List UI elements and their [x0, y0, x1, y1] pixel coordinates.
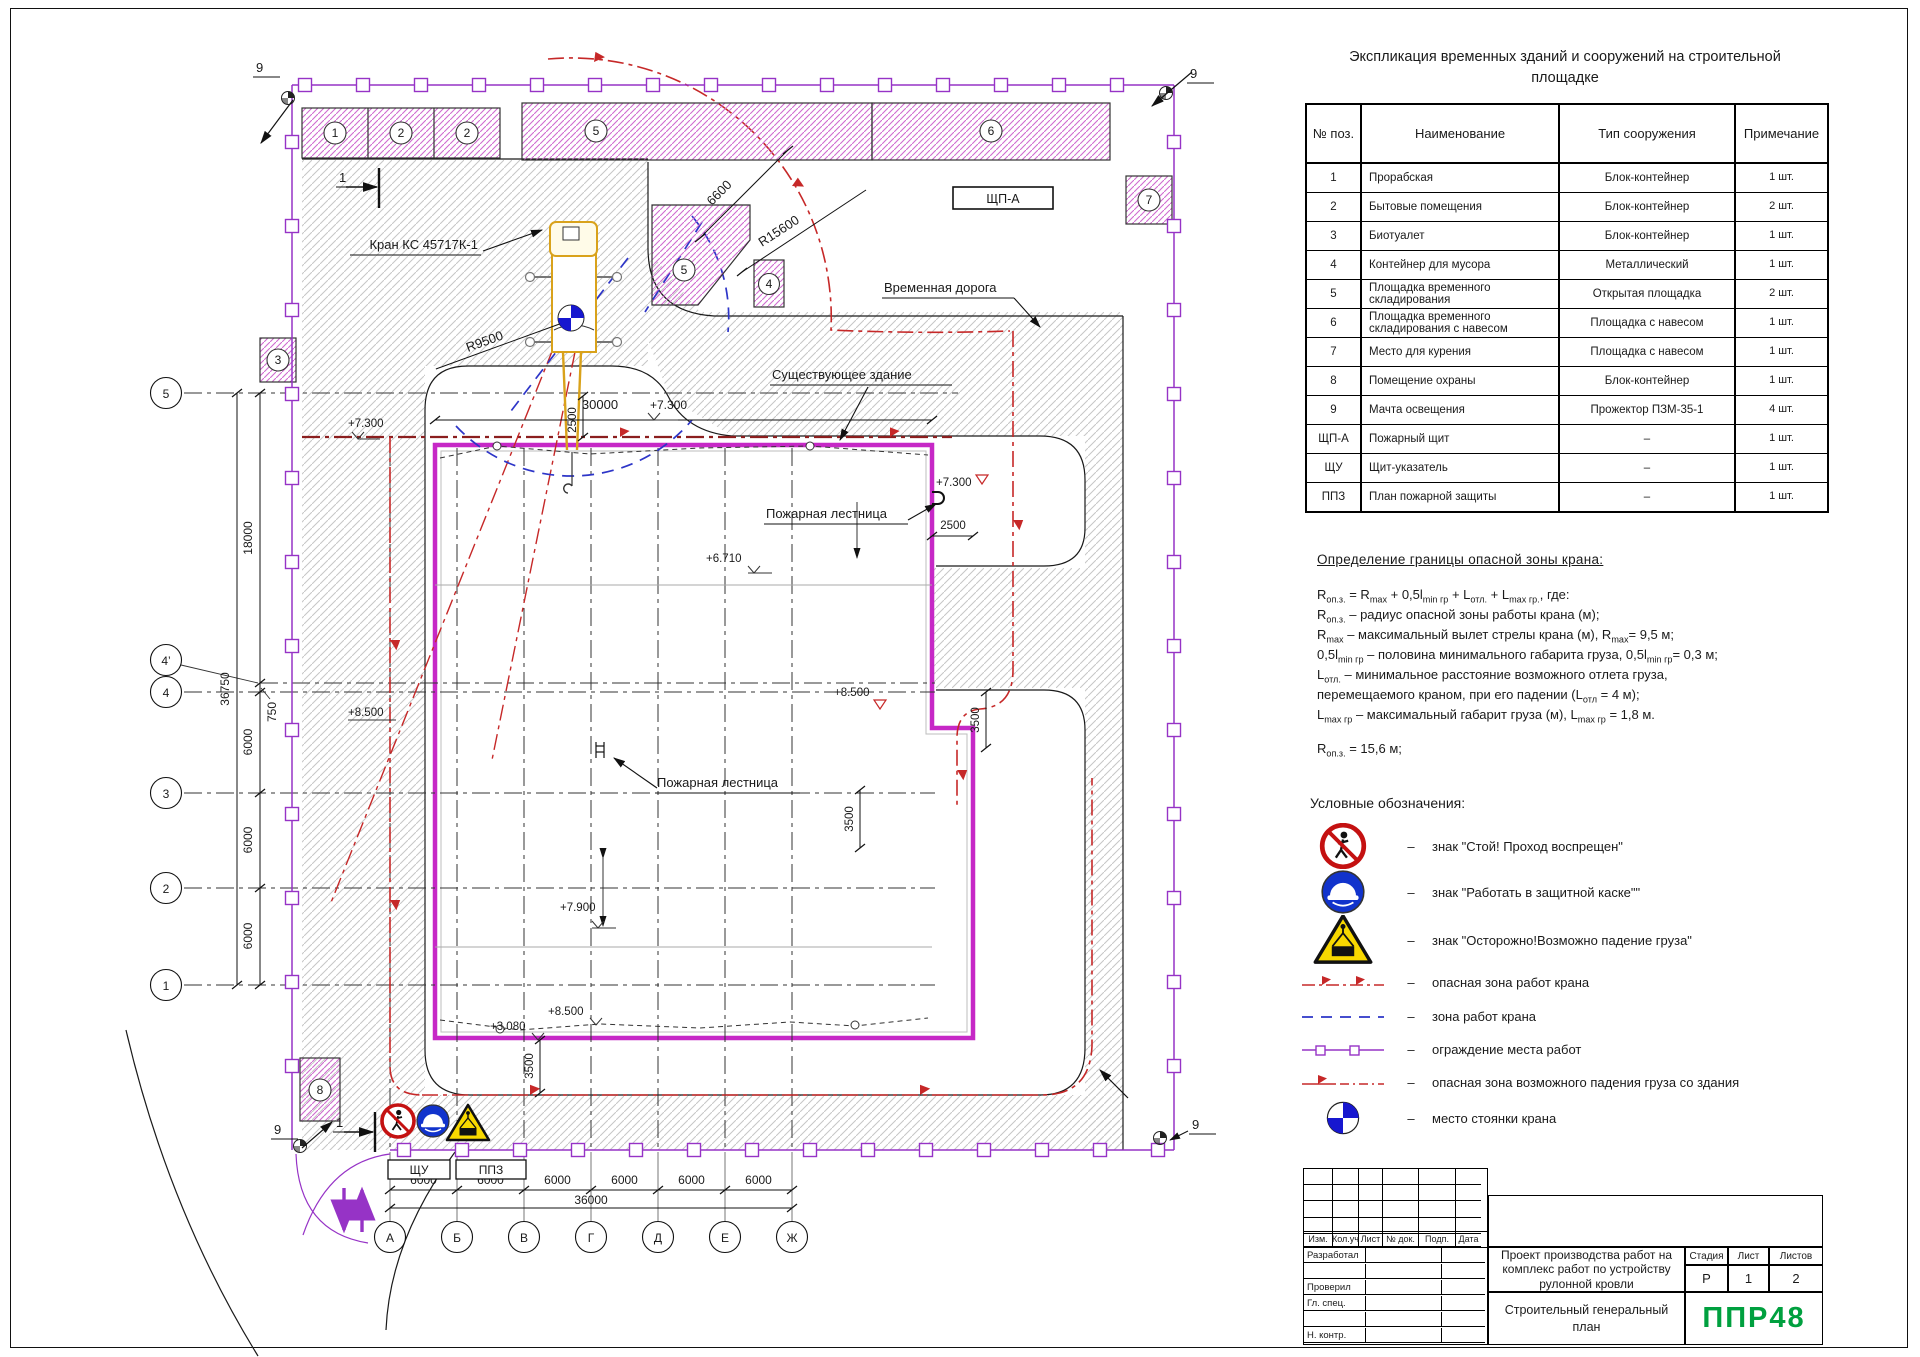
axis-label: 3: [163, 787, 170, 801]
formula-line: Lmax гр – максимальный габарит груза (м)…: [1317, 707, 1795, 727]
svg-text:9: 9: [1190, 66, 1197, 81]
fence-post: [879, 79, 892, 92]
legend-item: – опасная зона работ крана: [1295, 965, 1835, 1000]
expl-col-header: Тип сооружения: [1559, 104, 1735, 163]
svg-text:4: 4: [766, 277, 773, 291]
axis-label: Г: [588, 1231, 595, 1245]
svg-text:+7.900: +7.900: [560, 902, 596, 914]
legend-item: – знак "Работать в защитной каске"": [1295, 869, 1835, 915]
dim-label: 6000: [241, 826, 255, 853]
fence-post: [589, 79, 602, 92]
table-row: ППЗПлан пожарной защиты–1 шт.: [1306, 483, 1828, 513]
fence-post: [1094, 1144, 1107, 1157]
existing-building: [435, 445, 973, 1038]
svg-text:ППЗ: ППЗ: [479, 1163, 504, 1177]
fence-post: [937, 79, 950, 92]
axis-label: А: [386, 1231, 394, 1245]
danger-zone-line-icon: [1295, 975, 1390, 991]
fence-post: [286, 808, 299, 821]
legend-item: – место стоянки крана: [1295, 1098, 1835, 1138]
fence-line-icon: [1295, 1043, 1390, 1057]
doc-code-box: [1488, 1195, 1823, 1247]
fence-post: [1036, 1144, 1049, 1157]
fire-escape-label-1: Пожарная лестница: [766, 506, 888, 521]
danger-zone-result: Rоп.з. = 15,6 м;: [1317, 741, 1795, 761]
existing-building-label: Существующее здание: [772, 367, 912, 382]
legend-item: – знак "Стой! Проход воспрещен": [1295, 823, 1835, 869]
fence-post: [1152, 1144, 1165, 1157]
fence-post: [286, 556, 299, 569]
svg-text:1: 1: [339, 170, 346, 185]
dim-label: 18000: [241, 521, 255, 555]
fence-post: [1168, 892, 1181, 905]
legend-item: – зона работ крана: [1295, 1000, 1835, 1033]
role-label: [1304, 1312, 1366, 1327]
legend-item: – опасная зона возможного падения груза …: [1295, 1066, 1835, 1098]
formula-line: 0,5lmin гр – половина минимального габар…: [1317, 647, 1795, 667]
table-row: 4Контейнер для мусораМеталлический1 шт.: [1306, 251, 1828, 280]
fence-post: [398, 1144, 411, 1157]
dim-label: 6000: [241, 922, 255, 949]
svg-text:30000: 30000: [582, 397, 618, 412]
stop-sign-icon: [382, 1105, 414, 1137]
svg-text:+7.300: +7.300: [348, 418, 384, 430]
svg-text:2: 2: [398, 126, 405, 140]
svg-text:3500: 3500: [844, 806, 856, 832]
axis-label: 1: [163, 979, 170, 993]
table-row: 5Площадка временного складированияОткрыт…: [1306, 280, 1828, 309]
project-title-box: Проект производства работ на комплекс ра…: [1488, 1247, 1685, 1292]
fence-post: [514, 1144, 527, 1157]
table-row: 6Площадка временного складирования с нав…: [1306, 309, 1828, 338]
fence-post: [415, 79, 428, 92]
fence-post: [1168, 388, 1181, 401]
helmet-sign-icon: [1295, 869, 1390, 915]
role-label: Н. контр.: [1304, 1328, 1366, 1343]
fence-post: [1168, 556, 1181, 569]
sheets-total: 2: [1769, 1265, 1823, 1292]
svg-text:+8.500: +8.500: [548, 1006, 584, 1018]
crane-parking-symbol: [558, 305, 584, 331]
fence-post: [286, 976, 299, 989]
dim-6000: 6000: [611, 1173, 638, 1187]
svg-text:9: 9: [256, 60, 263, 75]
crane-label: Кран КС 45717К-1: [369, 237, 478, 252]
table-row: 2Бытовые помещенияБлок-контейнер2 шт.: [1306, 193, 1828, 222]
stop-sign-icon: [1295, 823, 1390, 869]
legend-item: – ограждение места работ: [1295, 1033, 1835, 1066]
expl-col-header: Примечание: [1735, 104, 1828, 163]
role-label: Гл. спец.: [1304, 1296, 1366, 1311]
fence-post: [746, 1144, 759, 1157]
fence-post: [286, 724, 299, 737]
svg-text:8: 8: [317, 1083, 324, 1097]
fence-post: [286, 304, 299, 317]
svg-text:R15600: R15600: [755, 212, 801, 249]
fence-post: [286, 1060, 299, 1073]
falling-load-sign-icon: [1295, 915, 1390, 965]
axis-label: Е: [721, 1231, 729, 1245]
svg-text:+6.710: +6.710: [706, 553, 742, 565]
fence-post: [978, 1144, 991, 1157]
temp-road-label: Временная дорога: [884, 280, 997, 295]
title-block: Изм.Кол.учЛист№ док.Подп.Дата Разработал…: [1303, 1168, 1823, 1345]
fence-post: [1168, 136, 1181, 149]
expl-col-header: № поз.: [1306, 104, 1361, 163]
svg-text:9: 9: [274, 1122, 281, 1137]
dim-6000: 6000: [544, 1173, 571, 1187]
sheet-label: Лист: [1728, 1247, 1769, 1265]
fence-post: [286, 220, 299, 233]
formula-line: Rоп.з. – радиус опасной зоны работы кран…: [1317, 607, 1795, 627]
dim-label: 36750: [218, 672, 232, 706]
fence-post: [286, 892, 299, 905]
axis-label: 2: [163, 882, 170, 896]
fence-post: [1168, 472, 1181, 485]
axis-label: Б: [453, 1231, 461, 1245]
axis-label: 4: [163, 686, 170, 700]
svg-text:3: 3: [275, 353, 282, 367]
fence-post: [705, 79, 718, 92]
svg-text:5: 5: [681, 263, 688, 277]
table-row: ЩУЩит-указатель–1 шт.: [1306, 454, 1828, 483]
table-row: ЩП-АПожарный щит–1 шт.: [1306, 425, 1828, 454]
fence-post: [688, 1144, 701, 1157]
fence-post: [286, 640, 299, 653]
ppr48-logo: ППР48: [1702, 1302, 1805, 1335]
legend-item: – знак "Осторожно!Возможно падение груза…: [1295, 915, 1835, 965]
drawing-sheet: АБВГДЕЖ60006000600060006000600036000 54’…: [0, 0, 1920, 1357]
axis-label: Ж: [786, 1231, 797, 1245]
svg-text:ЩП-А: ЩП-А: [986, 192, 1020, 206]
svg-text:9: 9: [1192, 1117, 1199, 1132]
fence-post: [1111, 79, 1124, 92]
danger-zone-title: Определение границы опасной зоны крана:: [1317, 552, 1795, 567]
fence-post: [531, 79, 544, 92]
dim-label: 750: [265, 702, 279, 722]
fence-post: [862, 1144, 875, 1157]
rev-col-label: Изм.: [1304, 1232, 1333, 1247]
sheets-label: Листов: [1769, 1247, 1823, 1265]
revision-header: Изм.Кол.учЛист№ док.Подп.Дата: [1303, 1231, 1488, 1248]
svg-text:+7.300: +7.300: [650, 398, 687, 412]
fence-post: [647, 79, 660, 92]
helmet-sign-icon: [417, 1105, 449, 1137]
fence-post: [357, 79, 370, 92]
fence-post: [1053, 79, 1066, 92]
svg-text:2500: 2500: [567, 407, 579, 433]
dim-36000: 36000: [574, 1193, 608, 1207]
fence-post: [286, 136, 299, 149]
table-row: 1ПрорабскаяБлок-контейнер1 шт.: [1306, 163, 1828, 193]
rev-col-label: Кол.уч: [1333, 1232, 1359, 1247]
fence-post: [1168, 640, 1181, 653]
role-label: [1304, 1264, 1366, 1279]
roles-grid: РазработалПроверилГл. спец.Н. контр.: [1303, 1247, 1488, 1345]
crane-parking-icon: [1295, 1098, 1390, 1138]
svg-text:2: 2: [464, 126, 471, 140]
fence-post: [995, 79, 1008, 92]
axis-label: Д: [654, 1231, 662, 1245]
danger-zone-block: Определение границы опасной зоны крана: …: [1317, 552, 1795, 761]
fence-post: [473, 79, 486, 92]
formula-line: Rоп.з. = Rmax + 0,5lmin гр + Lотл. + Lma…: [1317, 587, 1795, 607]
formula-line: Rmax – максимальный вылет стрелы крана (…: [1317, 627, 1795, 647]
dim-6000: 6000: [678, 1173, 705, 1187]
dim-6000: 6000: [745, 1173, 772, 1187]
explication-title: Экспликация временных зданий и сооружени…: [1345, 47, 1785, 89]
svg-text:ЩУ: ЩУ: [410, 1163, 429, 1177]
fence-post: [1168, 220, 1181, 233]
svg-text:1: 1: [332, 126, 339, 140]
crane-cab-window: [563, 227, 579, 240]
axis-label: 4’: [161, 654, 170, 668]
table-row: 3БиотуалетБлок-контейнер1 шт.: [1306, 222, 1828, 251]
stage-label: Стадия: [1685, 1247, 1728, 1265]
rev-col-label: № док.: [1383, 1232, 1419, 1247]
fence-post: [1168, 304, 1181, 317]
axis-label: В: [520, 1231, 528, 1245]
logo-box: ППР48: [1685, 1292, 1823, 1345]
svg-text:5: 5: [593, 124, 600, 138]
svg-text:7: 7: [1146, 193, 1153, 207]
fence-post: [1168, 976, 1181, 989]
fence-post: [286, 388, 299, 401]
doc-title-box: Строительный генеральный план: [1488, 1292, 1685, 1345]
sheet-number: 1: [1728, 1265, 1769, 1292]
svg-text:+7.300: +7.300: [936, 477, 972, 489]
fence-post: [821, 79, 834, 92]
fence-post: [1168, 1060, 1181, 1073]
svg-text:1: 1: [336, 1115, 343, 1130]
svg-text:3500: 3500: [524, 1053, 536, 1079]
role-label: Проверил: [1304, 1280, 1366, 1295]
formula-line: Lотл. – минимальное расстояние возможног…: [1317, 667, 1795, 687]
fence-post: [299, 79, 312, 92]
building-fall-zone-line-icon: [1295, 1074, 1390, 1090]
dim-label: 6000: [241, 728, 255, 755]
table-row: 7Место для куренияПлощадка с навесом1 шт…: [1306, 338, 1828, 367]
fire-escape-label-2: Пожарная лестница: [657, 775, 779, 790]
formula-line: перемещаемого краном, при его падении (L…: [1317, 687, 1795, 707]
legend: Условные обозначения: – знак "Стой! Прох…: [1295, 795, 1835, 1138]
fence-post: [1168, 808, 1181, 821]
fence-post: [804, 1144, 817, 1157]
legend-title: Условные обозначения:: [1310, 795, 1835, 811]
svg-text:+3.080: +3.080: [490, 1021, 526, 1033]
expl-col-header: Наименование: [1361, 104, 1559, 163]
table-row: 8Помещение охраныБлок-контейнер1 шт.: [1306, 367, 1828, 396]
svg-text:6600: 6600: [704, 177, 735, 208]
fence-post: [763, 79, 776, 92]
svg-text:6: 6: [988, 124, 995, 138]
fence-post: [920, 1144, 933, 1157]
explication-table: № поз.НаименованиеТип сооруженияПримечан…: [1305, 103, 1829, 513]
fence-post: [1168, 724, 1181, 737]
table-row: 9Мачта освещенияПрожектор ПЗМ-35-14 шт.: [1306, 396, 1828, 425]
svg-text:3500: 3500: [970, 707, 982, 733]
role-label: Разработал: [1304, 1248, 1366, 1263]
fence-post: [572, 1144, 585, 1157]
revision-grid: [1303, 1168, 1488, 1232]
axis-label: 5: [163, 387, 170, 401]
fence-post: [630, 1144, 643, 1157]
fence-post: [456, 1144, 469, 1157]
work-zone-line-icon: [1295, 1011, 1390, 1023]
rev-col-label: Дата: [1456, 1232, 1481, 1247]
stage-value: Р: [1685, 1265, 1728, 1292]
fence-post: [286, 472, 299, 485]
svg-text:2500: 2500: [940, 520, 966, 532]
svg-text:+8.500: +8.500: [834, 687, 870, 699]
svg-text:+8.500: +8.500: [348, 707, 384, 719]
rev-col-label: Лист: [1359, 1232, 1383, 1247]
rev-col-label: Подп.: [1419, 1232, 1456, 1247]
